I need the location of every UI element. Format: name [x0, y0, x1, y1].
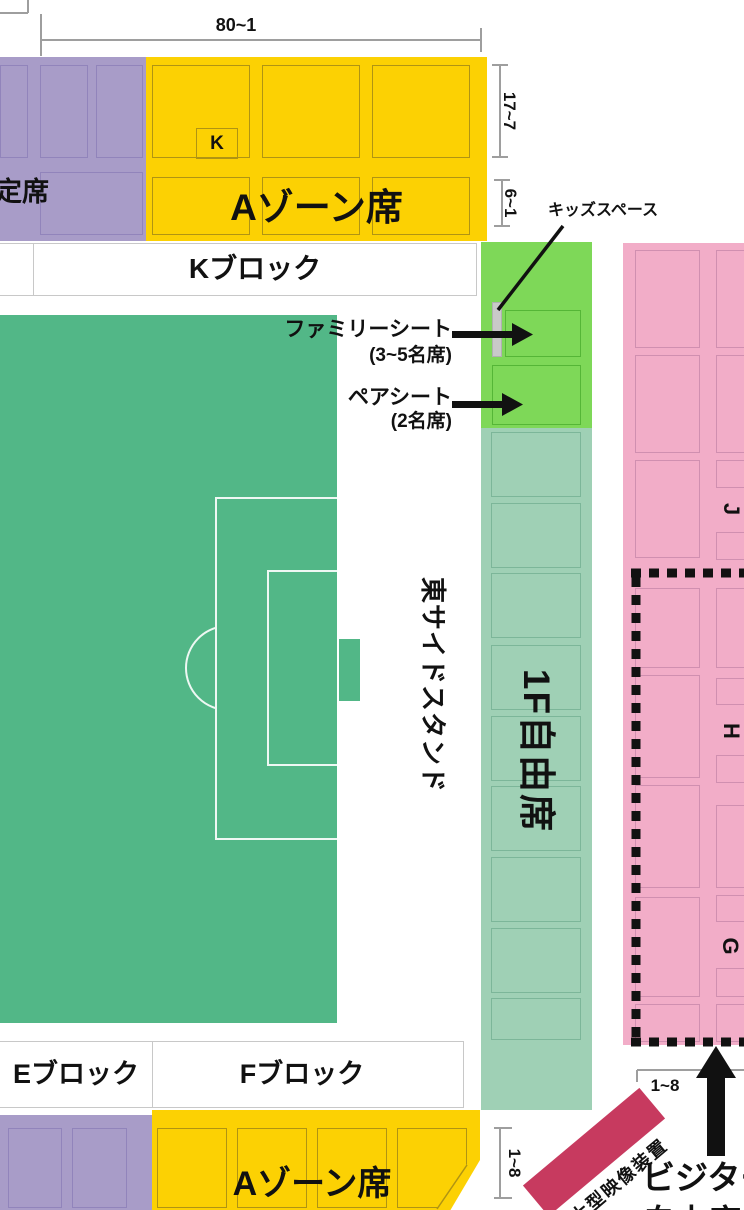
visitor-arrow-head	[696, 1046, 736, 1078]
bracket-top-label: 80~1	[196, 16, 276, 36]
pink-row-label-j: J	[717, 495, 744, 523]
pink-row-label-g: G	[716, 932, 744, 960]
bracket-right-lower-label: 6~1	[500, 180, 520, 226]
pair-seat-label: ペアシート	[282, 386, 452, 409]
visitor-dashed-boundary	[631, 573, 744, 1042]
pair-seat-arrow-shaft	[452, 401, 504, 408]
annotation-overlay	[0, 0, 744, 1210]
pair-seat-arrow-head	[502, 393, 523, 416]
bracket-bottom-pink-label: 1~8	[632, 1076, 698, 1096]
a-zone-top-label: Aゾーン席	[146, 188, 487, 228]
visitor-label: ビジター 自由席	[642, 1156, 744, 1210]
seat-arrows	[452, 323, 736, 1156]
kids-space-label: キッズスペース	[548, 202, 658, 220]
purple-zone-label: 定席	[0, 178, 49, 208]
kids-space-pointer-line	[498, 226, 563, 310]
bracket-fragment-top-left	[0, 0, 28, 13]
k-block-strip-label: Kブロック	[33, 243, 477, 296]
bracket-right-upper-label: 17~7	[499, 65, 519, 157]
pair-seat-capacity: (2名席)	[282, 412, 452, 433]
a-zone-bottom-label: Aゾーン席	[152, 1166, 472, 1204]
family-seat-label: ファミリーシート	[282, 318, 452, 341]
e-block-label: Eブロック	[0, 1041, 152, 1108]
bracket-bottom-left-label: 1~8	[504, 1128, 524, 1198]
free-seat-1f-label: 1F自由席	[516, 646, 556, 856]
visitor-label-line1: ビジター	[642, 1156, 744, 1200]
visitor-label-line2: 自由席	[642, 1200, 744, 1210]
stadium-seating-map: K 大型映像装置	[0, 0, 744, 1210]
family-seat-arrow-shaft	[452, 331, 514, 338]
family-seat-arrow-head	[512, 323, 533, 346]
f-block-label: Fブロック	[152, 1041, 452, 1108]
visitor-arrow-shaft	[707, 1076, 725, 1156]
east-stand-label: 東サイドスタンド	[418, 570, 448, 800]
family-seat-capacity: (3~5名席)	[282, 346, 452, 367]
pink-row-label-h: H	[717, 717, 744, 745]
